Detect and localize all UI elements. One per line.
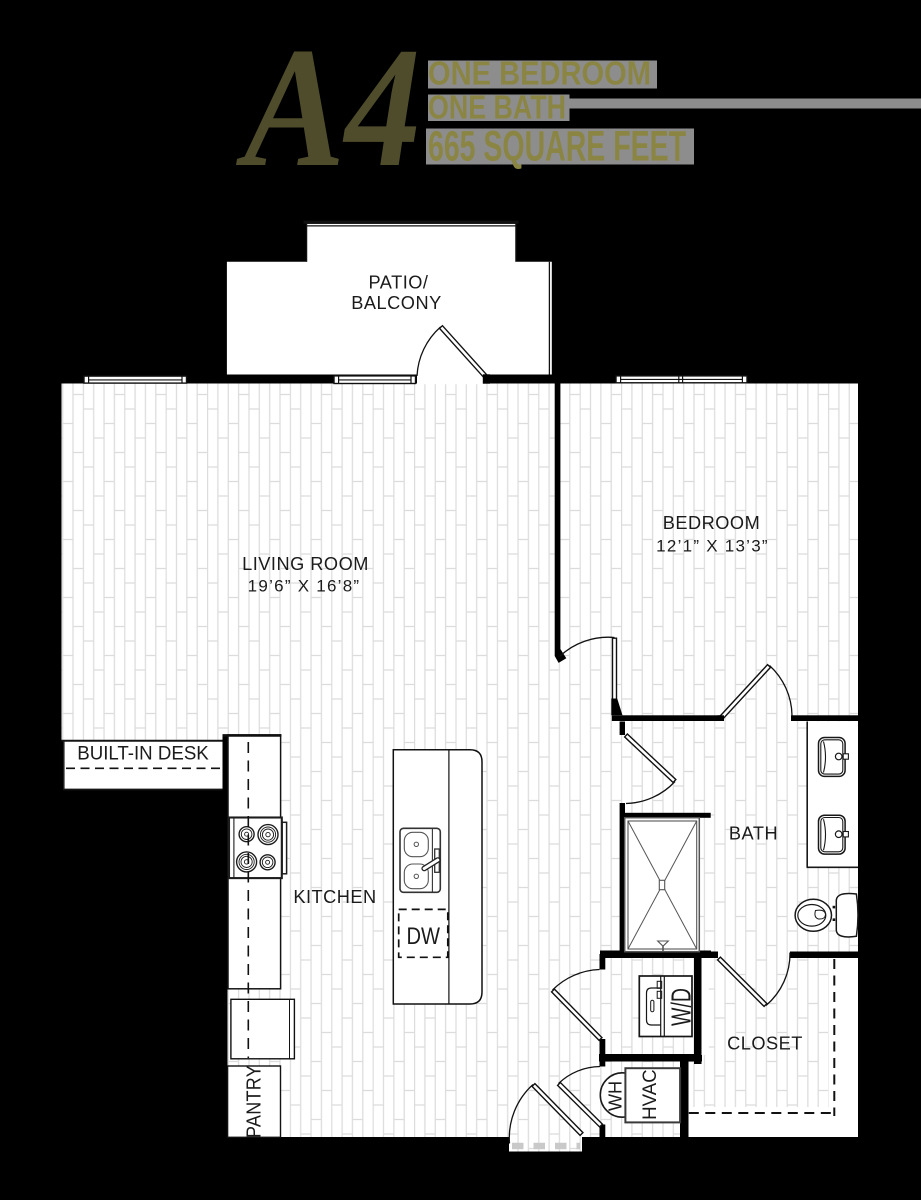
svg-text:HVAC: HVAC — [639, 1069, 661, 1120]
svg-text:665 SQUARE FEET: 665 SQUARE FEET — [428, 123, 686, 171]
svg-text:12’1” X 13’3”: 12’1” X 13’3” — [656, 537, 769, 556]
svg-text:ONE BEDROOM: ONE BEDROOM — [428, 55, 651, 92]
svg-text:PATIO/: PATIO/ — [369, 273, 429, 293]
svg-text:W/D: W/D — [666, 988, 697, 1026]
svg-text:BATH: BATH — [729, 824, 778, 844]
svg-text:DW: DW — [406, 923, 440, 950]
svg-text:BUILT-IN DESK: BUILT-IN DESK — [77, 743, 209, 765]
svg-text:BALCONY: BALCONY — [351, 293, 441, 313]
svg-text:LIVING ROOM: LIVING ROOM — [242, 554, 369, 574]
svg-text:WH: WH — [606, 1081, 626, 1111]
svg-text:CLOSET: CLOSET — [727, 1034, 803, 1054]
svg-text:BEDROOM: BEDROOM — [663, 513, 760, 533]
svg-text:19’6” X 16’8”: 19’6” X 16’8” — [248, 577, 361, 596]
svg-text:PANTRY: PANTRY — [244, 1065, 266, 1138]
svg-text:A4: A4 — [236, 11, 421, 202]
svg-text:KITCHEN: KITCHEN — [293, 887, 376, 907]
svg-text:ONE BATH: ONE BATH — [428, 89, 566, 126]
